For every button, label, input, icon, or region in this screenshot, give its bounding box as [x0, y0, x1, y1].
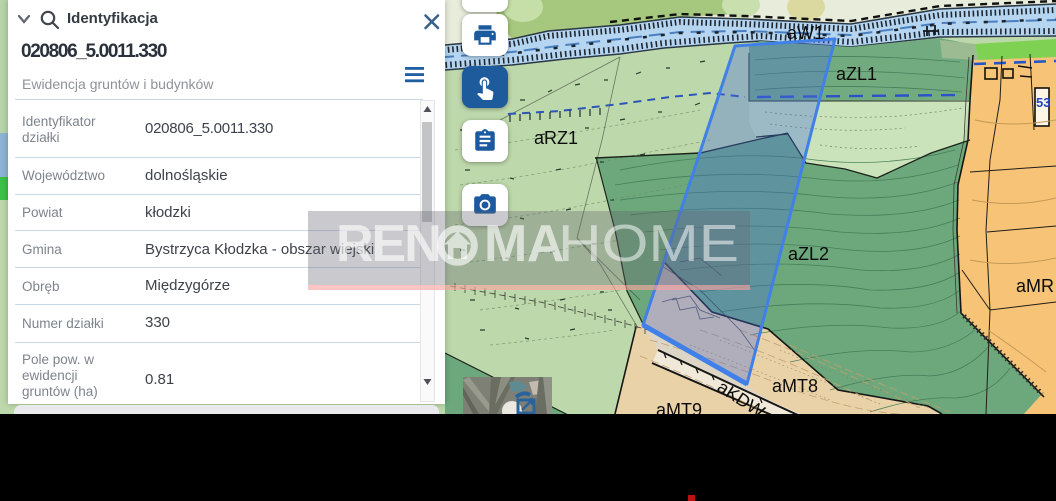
svg-text:aZL2: aZL2 [788, 244, 829, 264]
svg-text:aW1: aW1 [787, 23, 824, 43]
svg-text:aMR: aMR [1016, 276, 1054, 296]
svg-text:aZL1: aZL1 [836, 64, 877, 84]
svg-text:aMT9: aMT9 [656, 400, 702, 414]
svg-text:53: 53 [1036, 95, 1050, 110]
svg-text:aRZ1: aRZ1 [534, 128, 578, 148]
svg-text:aMT8: aMT8 [772, 376, 818, 396]
